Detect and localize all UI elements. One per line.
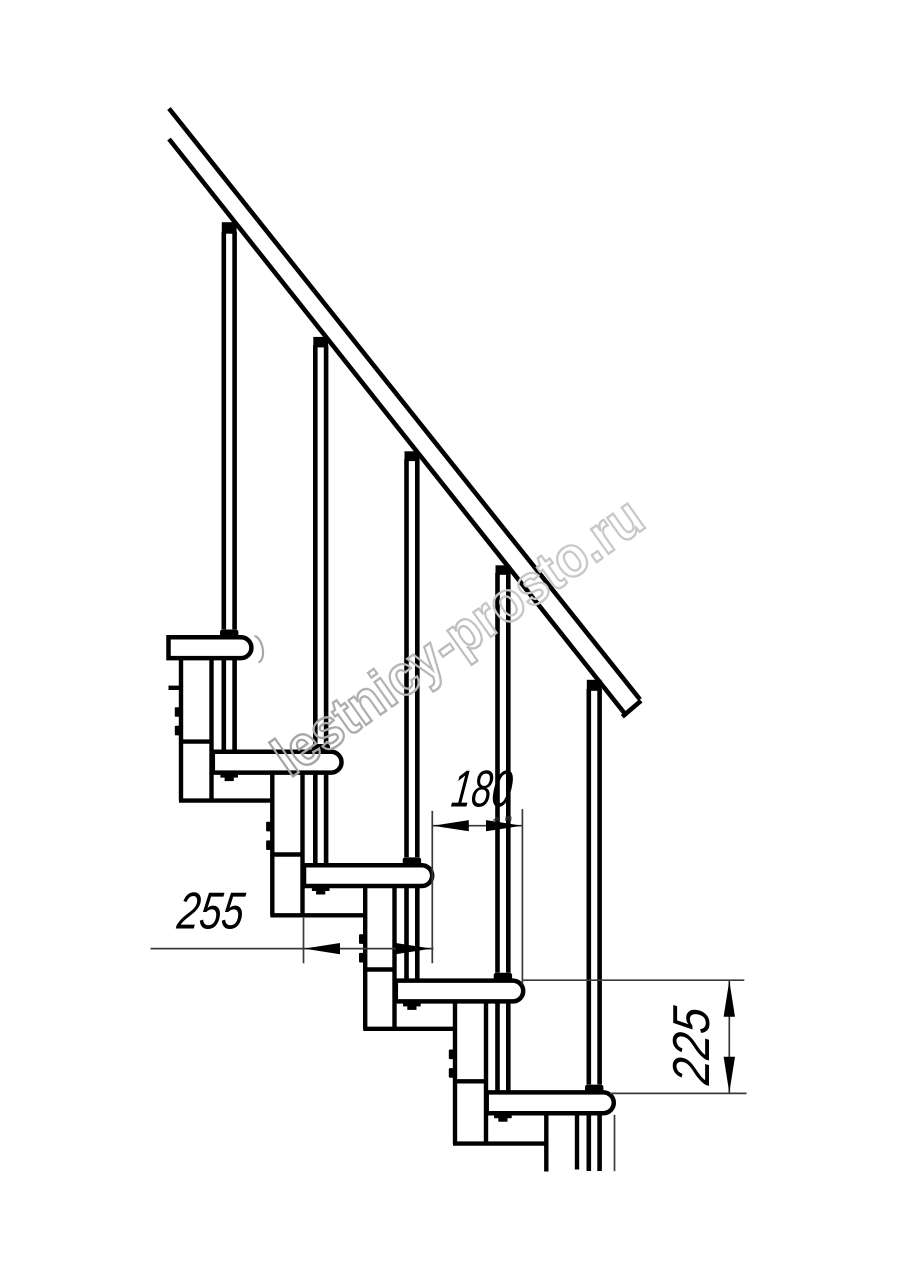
svg-text:255: 255	[174, 882, 249, 940]
svg-text:180: 180	[449, 761, 516, 819]
svg-text:225: 225	[663, 1003, 721, 1088]
